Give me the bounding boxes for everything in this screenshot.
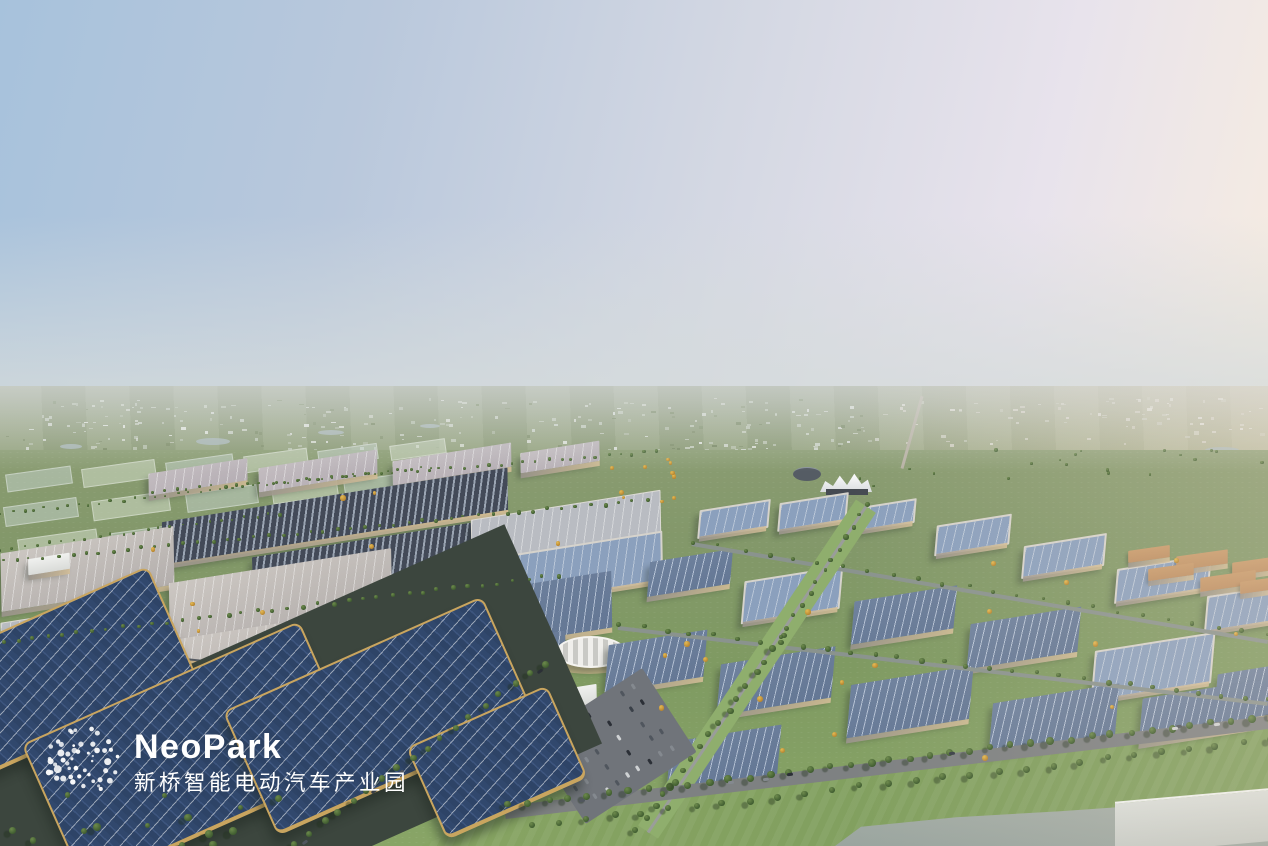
tree — [196, 540, 200, 544]
tree — [1196, 691, 1201, 696]
distant-town-speckle — [1132, 426, 1134, 429]
distant-town-speckle — [175, 407, 178, 408]
distant-town-speckle — [84, 431, 86, 433]
tree — [83, 538, 86, 541]
tree — [425, 746, 431, 752]
distant-town-speckle — [92, 405, 95, 406]
distant-town-speckle — [174, 415, 176, 416]
distant-town-speckle — [220, 424, 223, 425]
tree — [430, 467, 432, 469]
distant-town-speckle — [476, 404, 479, 406]
tree — [506, 512, 509, 515]
distant-town-speckle — [326, 441, 329, 443]
tree — [332, 602, 337, 607]
distant-town-speckle — [1190, 423, 1192, 425]
distant-town-speckle — [850, 406, 854, 409]
distant-town-speckle — [180, 420, 183, 422]
tree — [163, 489, 166, 492]
tree — [769, 645, 776, 652]
distant-town-speckle — [527, 440, 531, 442]
distant-town-speckle — [76, 422, 80, 423]
tree — [644, 815, 650, 821]
tree — [147, 528, 150, 531]
distant-town-speckle — [976, 412, 980, 414]
distant-town-speckle — [796, 415, 801, 417]
tree — [369, 544, 374, 549]
distant-town-speckle — [1229, 429, 1232, 431]
distant-town-speckle — [1064, 422, 1068, 423]
tree — [291, 841, 297, 846]
tree — [278, 513, 281, 516]
car — [670, 745, 675, 751]
tree — [784, 626, 789, 631]
distant-town-speckle — [746, 426, 751, 429]
tree — [243, 515, 245, 517]
distant-town-speckle — [533, 401, 538, 402]
tree — [718, 800, 725, 807]
distant-town-speckle — [690, 425, 695, 427]
distant-town-speckle — [807, 409, 809, 412]
distant-town-speckle — [1256, 413, 1261, 414]
tree — [791, 557, 795, 561]
tree — [542, 661, 549, 668]
tree — [404, 469, 407, 472]
distant-town-speckle — [797, 424, 801, 426]
distant-town-speckle — [724, 444, 727, 446]
tree — [367, 472, 370, 475]
tree — [1080, 450, 1082, 452]
distant-town-speckle — [714, 415, 717, 417]
distant-town-speckle — [440, 423, 445, 425]
tree — [1174, 558, 1178, 562]
tree — [373, 491, 377, 495]
tree — [564, 795, 571, 802]
distant-town-speckle — [712, 445, 717, 447]
tree — [774, 794, 781, 801]
distant-town-speckle — [1135, 411, 1140, 414]
distant-town-speckle — [230, 416, 232, 419]
distant-town-speckle — [714, 398, 716, 399]
tree — [527, 670, 533, 676]
distant-town-speckle — [411, 421, 415, 423]
tree — [779, 635, 783, 639]
distant-town-speckle — [1211, 417, 1213, 419]
distant-town-speckle — [45, 418, 48, 421]
distant-town-speckle — [400, 434, 404, 436]
tree — [874, 652, 879, 657]
car — [629, 706, 634, 712]
distant-town-speckle — [121, 404, 124, 406]
distant-town-speckle — [1038, 404, 1042, 405]
distant-town-speckle — [298, 445, 302, 448]
tree — [655, 449, 658, 452]
neopark-logo-mark — [38, 716, 126, 806]
distant-town-speckle — [184, 411, 187, 413]
distant-town-speckle — [816, 414, 821, 415]
distant-town-speckle — [53, 401, 56, 404]
distant-town-speckle — [651, 411, 656, 413]
distant-town-speckle — [313, 422, 316, 425]
distant-town-speckle — [135, 420, 138, 422]
distant-town-speckle — [471, 416, 473, 417]
logo-title: NeoPark — [134, 730, 409, 764]
distant-town-speckle — [335, 427, 340, 429]
distant-town-speckle — [792, 411, 795, 414]
tree — [991, 561, 996, 566]
tree — [492, 512, 495, 515]
distant-town-speckle — [881, 436, 885, 438]
tree — [805, 609, 811, 615]
distant-town-speckle — [119, 423, 121, 425]
distant-town-speckle — [1148, 443, 1153, 444]
tree — [642, 624, 646, 628]
tree — [711, 632, 715, 636]
tree — [104, 628, 107, 631]
distant-town-speckle — [166, 443, 170, 446]
distant-town-speckle — [967, 414, 970, 417]
distant-town-speckle — [765, 409, 768, 411]
tree — [531, 510, 535, 514]
tree — [72, 553, 76, 557]
tree — [209, 841, 217, 846]
distant-town-speckle — [1138, 399, 1141, 402]
distant-town-speckle — [799, 399, 803, 402]
distant-town-speckle — [752, 446, 756, 448]
tree — [513, 680, 520, 687]
distant-town-speckle — [460, 417, 463, 419]
tree — [646, 785, 652, 791]
tree — [165, 622, 168, 625]
distant-town-speckle — [505, 408, 510, 409]
distant-town-speckle — [304, 414, 306, 416]
tree — [660, 791, 665, 796]
tree — [663, 653, 667, 657]
distant-town-speckle — [169, 435, 172, 436]
distant-town-speckle — [578, 416, 581, 418]
tree — [210, 484, 212, 486]
distant-town-speckle — [996, 440, 998, 442]
tree — [848, 651, 853, 656]
car — [648, 758, 653, 764]
car — [657, 751, 662, 757]
lake — [60, 444, 82, 449]
distant-town-speckle — [287, 434, 291, 436]
distant-town-speckle — [964, 440, 966, 442]
tree — [747, 798, 754, 805]
distant-town-speckle — [126, 409, 130, 410]
tree — [1056, 673, 1061, 678]
car — [620, 690, 625, 696]
distant-town-speckle — [841, 425, 845, 428]
distant-town-speckle — [1249, 411, 1251, 413]
distant-town-speckle — [312, 407, 316, 408]
tree — [1027, 739, 1035, 747]
distant-town-speckle — [1168, 413, 1173, 415]
tree — [151, 491, 154, 494]
distant-town-speckle — [1119, 413, 1121, 415]
distant-town-speckle — [749, 401, 754, 403]
tree — [801, 644, 806, 649]
car — [635, 765, 640, 771]
tree — [521, 460, 524, 463]
distant-town-speckle — [695, 420, 697, 422]
distant-town-speckle — [624, 433, 629, 435]
car — [592, 793, 597, 799]
distant-town-speckle — [240, 419, 243, 422]
tree — [885, 780, 892, 787]
distant-town-speckle — [739, 446, 744, 447]
tree — [684, 641, 690, 647]
tree — [1106, 680, 1112, 686]
tree — [81, 828, 87, 834]
distant-town-speckle — [132, 407, 134, 408]
distant-town-speckle — [1033, 418, 1037, 419]
tree — [176, 487, 180, 491]
tree — [465, 584, 469, 588]
distant-town-speckle — [1238, 406, 1242, 409]
car — [639, 721, 644, 727]
distant-town-speckle — [1167, 418, 1170, 421]
distant-town-speckle — [228, 431, 233, 434]
distant-town-speckle — [741, 406, 745, 408]
distant-town-speckle — [29, 443, 34, 446]
tree — [301, 605, 306, 610]
tree — [557, 574, 562, 579]
tree — [715, 720, 721, 726]
distant-town-speckle — [417, 436, 421, 438]
distant-town-speckle — [123, 425, 125, 428]
distant-town-speckle — [446, 419, 449, 422]
tree — [341, 475, 344, 478]
tree — [1174, 688, 1179, 693]
distant-town-speckle — [1054, 396, 1058, 398]
tree — [916, 576, 921, 581]
distant-town-speckle — [950, 409, 955, 410]
distant-town-speckle — [205, 431, 207, 434]
tree — [593, 456, 597, 460]
tree — [336, 527, 340, 531]
distant-town-speckle — [765, 402, 768, 404]
car — [604, 764, 609, 770]
distant-town-speckle — [850, 416, 854, 418]
distant-town-speckle — [806, 433, 809, 435]
tree — [982, 755, 988, 761]
tree — [220, 519, 223, 522]
car — [616, 735, 621, 741]
distant-town-speckle — [1200, 423, 1204, 425]
tree — [825, 646, 831, 652]
tree — [378, 524, 381, 527]
tree — [145, 823, 150, 828]
distant-town-speckle — [1185, 436, 1189, 438]
tree — [994, 448, 997, 451]
distant-town-speckle — [461, 407, 464, 408]
distant-town-speckle — [103, 425, 108, 427]
car — [659, 728, 664, 734]
distant-town-speckle — [1198, 417, 1202, 418]
car — [607, 720, 612, 726]
distant-town-speckle — [93, 422, 96, 423]
distant-town-speckle — [134, 436, 137, 438]
tree — [1007, 477, 1010, 480]
distant-town-speckle — [617, 408, 621, 410]
distant-town-speckle — [699, 442, 702, 444]
distant-town-speckle — [105, 416, 109, 418]
tree — [1248, 715, 1255, 722]
distant-town-speckle — [371, 423, 375, 426]
distant-town-speckle — [446, 424, 450, 426]
distant-town-speckle — [459, 432, 462, 434]
distant-town-speckle — [135, 423, 139, 425]
tree — [42, 506, 44, 508]
distant-town-speckle — [1192, 429, 1195, 430]
distant-town-speckle — [136, 438, 138, 440]
tree — [859, 477, 862, 480]
tree — [1107, 471, 1110, 474]
distant-town-speckle — [458, 401, 462, 402]
distant-town-speckle — [101, 406, 103, 408]
distant-town-speckle — [773, 444, 776, 445]
tree — [408, 591, 412, 595]
distant-town-speckle — [369, 415, 373, 418]
tree — [829, 787, 835, 793]
distant-town-speckle — [344, 407, 346, 408]
tree — [1064, 580, 1068, 584]
tree — [212, 540, 216, 544]
tree — [205, 830, 213, 838]
distant-town-speckle — [138, 422, 141, 424]
distant-town-speckle — [389, 413, 392, 415]
tree — [476, 465, 479, 468]
distant-town-speckle — [67, 425, 70, 426]
tree — [1158, 748, 1165, 755]
tree — [197, 629, 201, 633]
distant-town-speckle — [999, 402, 1002, 404]
tree — [697, 744, 703, 750]
distant-town-speckle — [451, 439, 455, 442]
distant-town-speckle — [532, 429, 535, 432]
tree — [556, 820, 562, 826]
distant-town-speckle — [137, 411, 140, 412]
distant-town-speckle — [766, 448, 769, 449]
tree — [282, 534, 285, 537]
tree — [331, 476, 333, 478]
tree — [60, 540, 62, 542]
distant-town-speckle — [180, 439, 183, 441]
tree — [306, 831, 312, 837]
tree — [241, 485, 244, 488]
distant-town-speckle — [904, 426, 908, 428]
tree — [195, 523, 197, 525]
tree — [209, 489, 211, 491]
tree — [807, 766, 814, 773]
distant-town-speckle — [813, 446, 815, 448]
distant-town-speckle — [699, 426, 703, 429]
tree — [680, 768, 685, 773]
distant-town-speckle — [339, 426, 344, 428]
distant-town-speckle — [763, 441, 767, 444]
distant-town-speckle — [875, 438, 879, 441]
tree — [9, 827, 16, 834]
tree — [583, 793, 590, 800]
distant-town-speckle — [380, 436, 384, 439]
tree — [364, 472, 367, 475]
distant-town-speckle — [1232, 433, 1236, 435]
tree — [87, 504, 90, 507]
distant-town-speckle — [847, 441, 850, 443]
tree — [85, 551, 88, 554]
distant-town-speckle — [1170, 398, 1174, 401]
tree — [1110, 705, 1114, 709]
tree — [410, 468, 413, 471]
tree — [450, 517, 453, 520]
distant-town-speckle — [853, 433, 857, 434]
tree — [363, 525, 367, 529]
tree — [619, 490, 624, 495]
tree — [560, 507, 563, 510]
tree — [1207, 719, 1213, 725]
tree — [421, 591, 424, 594]
distant-town-speckle — [585, 405, 588, 407]
distant-town-speckle — [624, 402, 628, 403]
distant-town-speckle — [1020, 406, 1025, 408]
car — [639, 699, 644, 705]
tree — [872, 663, 877, 668]
distant-town-speckle — [755, 443, 758, 444]
tree — [500, 464, 503, 467]
tree — [451, 585, 456, 590]
tree — [231, 519, 233, 521]
distant-town-speckle — [1008, 417, 1013, 418]
tree — [1241, 739, 1247, 745]
distant-town-speckle — [364, 423, 368, 425]
distant-town-speckle — [670, 444, 674, 446]
tree — [907, 756, 914, 763]
distant-town-speckle — [1081, 442, 1086, 444]
tree — [416, 470, 418, 472]
tree — [624, 787, 631, 794]
distant-town-speckle — [1106, 401, 1108, 402]
tree — [57, 555, 60, 558]
tree — [270, 609, 274, 613]
distant-town-speckle — [1066, 417, 1070, 418]
distant-town-speckle — [742, 431, 746, 433]
tree — [235, 483, 239, 487]
distant-town-speckle — [221, 406, 226, 408]
tree — [316, 478, 319, 481]
distant-town-speckle — [838, 443, 842, 445]
distant-town-speckle — [1157, 422, 1161, 425]
tree — [1219, 694, 1224, 699]
tree — [483, 703, 489, 709]
tree — [434, 519, 438, 523]
distant-town-speckle — [685, 439, 689, 440]
tree — [168, 525, 171, 528]
distant-town-speckle — [1155, 399, 1160, 402]
tree — [622, 496, 625, 499]
distant-town-speckle — [563, 441, 567, 444]
distant-town-speckle — [91, 446, 95, 449]
car — [584, 778, 589, 784]
tree — [758, 640, 763, 645]
distant-town-speckle — [29, 429, 34, 430]
tree — [868, 759, 876, 767]
tree — [1210, 449, 1213, 452]
distant-town-speckle — [990, 443, 993, 444]
tree — [686, 632, 691, 637]
distant-town-speckle — [1102, 417, 1107, 419]
logo-subtitle: 新桥智能电动汽车产业园 — [134, 773, 409, 795]
